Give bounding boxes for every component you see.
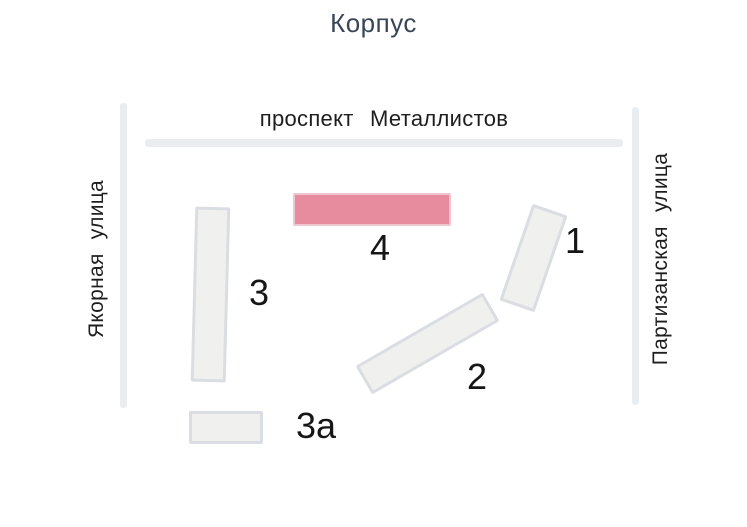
building-3a-shape[interactable] (189, 411, 263, 444)
street-name-right: Партизанская улица (648, 129, 674, 389)
building-3a-label: 3а (296, 405, 336, 447)
building-3-label: 3 (249, 272, 269, 314)
page-title: Корпус (0, 8, 747, 39)
building-1-label: 1 (565, 220, 585, 262)
building-3-shape[interactable] (191, 207, 231, 383)
road-top (145, 139, 623, 147)
road-left (120, 103, 127, 408)
building-1-shape[interactable] (499, 204, 567, 312)
building-4-shape-selected[interactable] (293, 193, 451, 226)
street-name-top: проспект Металлистов (145, 106, 623, 132)
building-2-label: 2 (467, 356, 487, 398)
building-4-label: 4 (370, 227, 390, 269)
building-picker-map: Корпус проспект Металлистов Якорная улиц… (0, 0, 747, 527)
road-right (632, 107, 639, 405)
street-name-left: Якорная улица (84, 139, 110, 379)
